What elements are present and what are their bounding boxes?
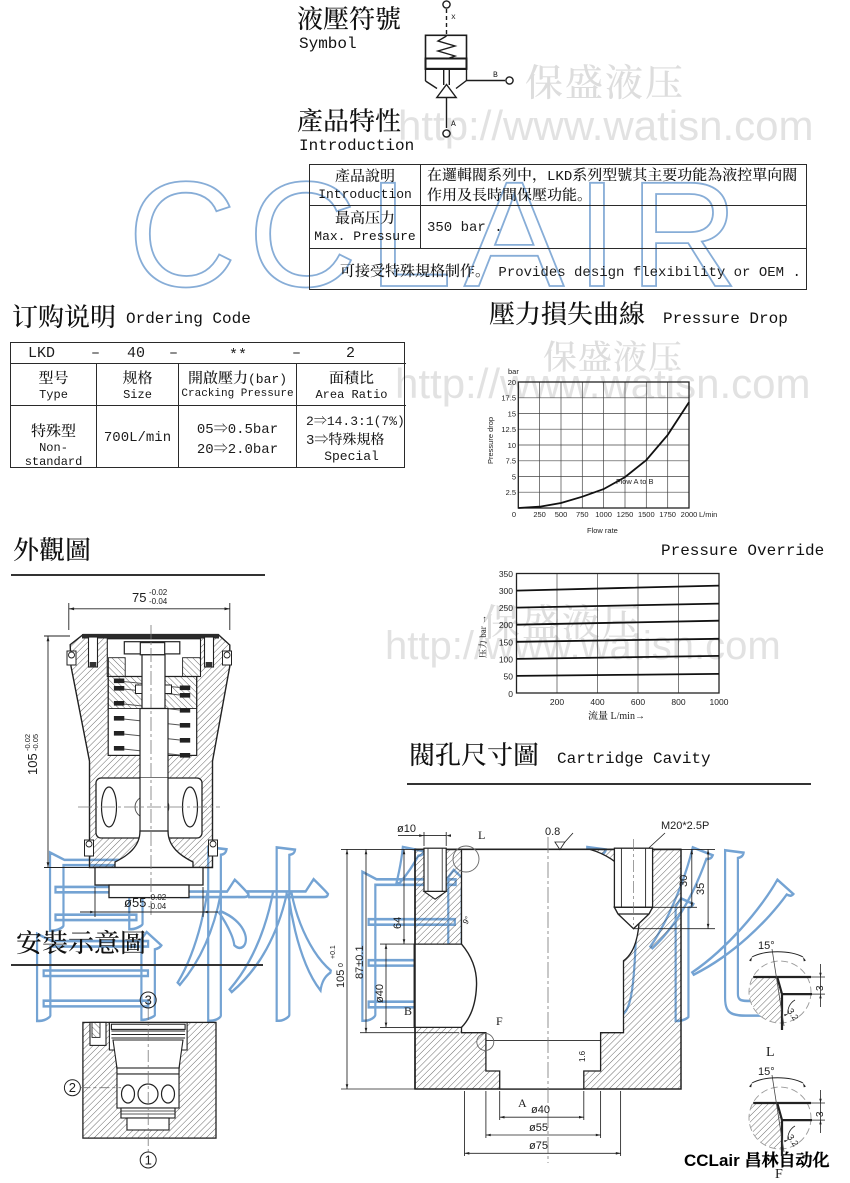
svg-text:流量 L/min→: 流量 L/min→ [588,707,645,722]
svg-text:200: 200 [499,620,513,630]
svg-text:-0.02: -0.02 [148,893,167,902]
svg-text:0: 0 [508,689,513,699]
svg-text:600: 600 [631,697,645,707]
svg-text:0: 0 [512,510,516,519]
svg-text:ø40: ø40 [531,1104,550,1116]
svg-text:1500: 1500 [638,510,655,519]
svg-text:105: 105 [335,970,347,988]
svg-text:B: B [404,1002,412,1019]
svg-text:1000: 1000 [710,697,729,707]
svg-text:2: 2 [69,1080,76,1095]
svg-text:800: 800 [671,697,685,707]
svg-text:ø55: ø55 [124,895,146,910]
svg-text:20: 20 [508,378,516,387]
svg-text:压力 bar →: 压力 bar → [476,615,489,658]
svg-text:F: F [775,1163,783,1183]
svg-text:-0.02: -0.02 [149,588,168,597]
svg-text:L: L [478,826,485,843]
svg-text:100: 100 [499,654,513,664]
svg-text:+0.1: +0.1 [330,945,337,959]
svg-text:-0.05: -0.05 [31,734,40,751]
svg-text:105: 105 [25,753,40,775]
svg-text:A: A [451,120,456,129]
svg-text:15°: 15° [758,1066,775,1078]
svg-text:2.5: 2.5 [506,488,516,497]
svg-text:250: 250 [499,603,513,613]
svg-text:M20*2.5P: M20*2.5P [661,820,709,832]
svg-text:15: 15 [508,410,516,419]
svg-text:Pressure drop: Pressure drop [486,417,495,464]
svg-text:10: 10 [508,441,516,450]
svg-text:1000: 1000 [595,510,612,519]
svg-text:-0.04: -0.04 [148,902,167,911]
svg-text:1250: 1250 [617,510,634,519]
svg-text:ø40: ø40 [374,984,386,1003]
svg-text:A: A [518,1094,527,1111]
svg-text:ø75: ø75 [529,1140,548,1152]
svg-text:Flow rate: Flow rate [587,526,618,535]
svg-text:250: 250 [533,510,546,519]
svg-text:400: 400 [590,697,604,707]
svg-text:750: 750 [576,510,589,519]
svg-text:x: x [451,13,456,22]
svg-text:3: 3 [145,993,152,1008]
svg-text:2000: 2000 [681,510,698,519]
svg-text:L: L [766,1041,775,1061]
svg-text:B: B [493,71,498,80]
svg-text:bar: bar [508,367,519,376]
svg-text:64: 64 [392,917,404,929]
svg-text:15°: 15° [758,940,775,952]
svg-text:3: 3 [815,1111,826,1117]
svg-text:30: 30 [678,875,690,887]
svg-text:75: 75 [132,590,146,605]
svg-text:200: 200 [550,697,564,707]
svg-text:300: 300 [499,586,513,596]
svg-text:1750: 1750 [659,510,676,519]
svg-text:1.6: 1.6 [578,1050,587,1062]
svg-text:17.5: 17.5 [501,394,516,403]
svg-text:ø55: ø55 [529,1122,548,1134]
svg-text:F: F [496,1012,503,1029]
svg-text:Flow A to B: Flow A to B [616,477,654,486]
svg-text:500: 500 [555,510,568,519]
svg-text:L/min: L/min [699,510,717,519]
svg-text:0.8: 0.8 [545,826,560,838]
svg-text:ø10: ø10 [397,823,416,835]
svg-text:3: 3 [815,985,826,991]
svg-text:-0.04: -0.04 [149,597,168,606]
svg-text:1: 1 [145,1153,152,1168]
svg-text:35: 35 [695,883,707,895]
svg-text:150: 150 [499,637,513,647]
svg-text:50: 50 [504,672,514,682]
svg-text:12.5: 12.5 [501,425,516,434]
svg-text:0: 0 [338,963,345,967]
svg-text:7.5: 7.5 [506,457,516,466]
svg-text:5: 5 [512,473,516,482]
svg-text:87±0.1: 87±0.1 [354,945,366,979]
svg-text:350: 350 [499,569,513,579]
